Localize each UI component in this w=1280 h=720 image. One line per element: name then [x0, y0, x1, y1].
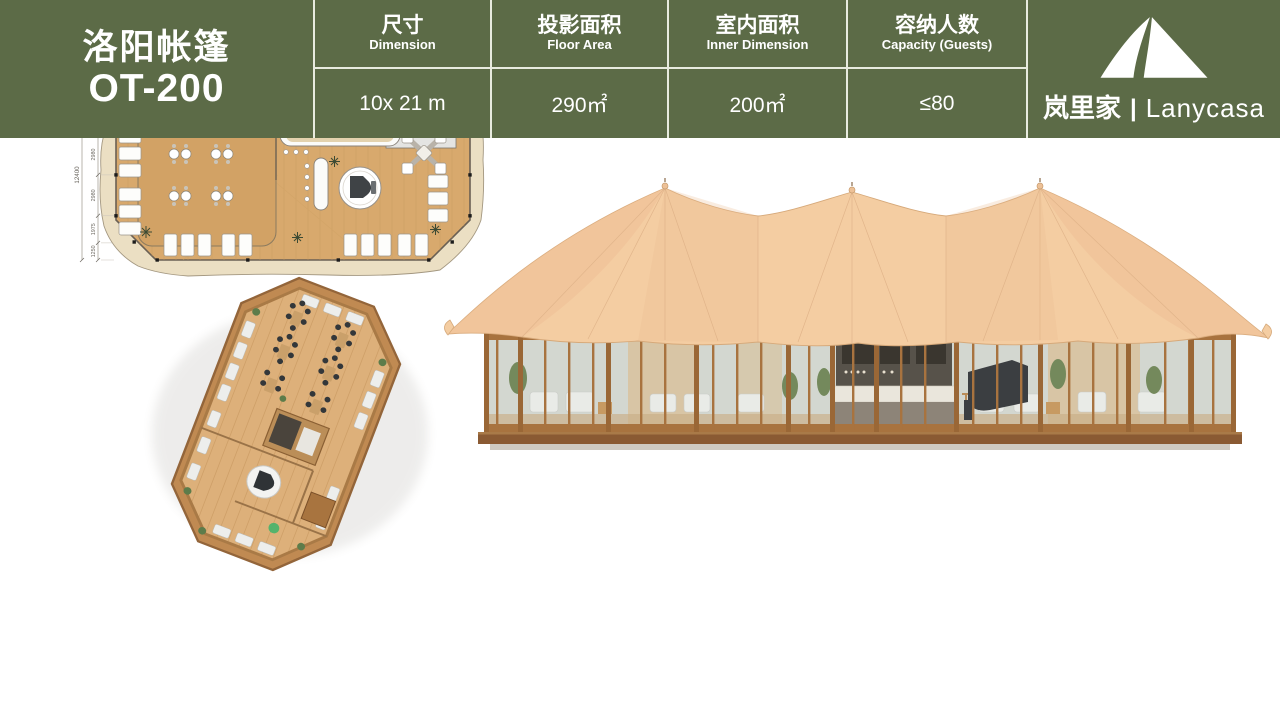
spec-header: 室内面积 Inner Dimension	[669, 0, 846, 69]
product-model: OT-200	[88, 67, 224, 111]
tent-deck	[478, 432, 1242, 450]
brand-name-en: Lanycasa	[1146, 93, 1265, 124]
spec-col-capacity: 容纳人数 Capacity (Guests) ≤80	[848, 0, 1028, 138]
spec-label-cn: 投影面积	[538, 14, 622, 38]
spec-col-inner-dimension: 室内面积 Inner Dimension 200㎡	[669, 0, 848, 138]
spec-label-en: Inner Dimension	[707, 38, 809, 53]
svg-text:2980: 2980	[91, 149, 97, 161]
spec-value: 290㎡	[492, 69, 667, 138]
spec-col-dimension: 尺寸 Dimension 10x 21 m	[315, 0, 492, 138]
spec-label-cn: 室内面积	[716, 14, 800, 38]
spec-header: 投影面积 Floor Area	[492, 0, 667, 69]
brand-name: 岚里家 | Lanycasa	[1043, 88, 1265, 125]
product-title: 洛阳帐篷	[82, 28, 230, 67]
svg-text:2980: 2980	[91, 189, 97, 201]
spec-bar: 洛阳帐篷 OT-200 尺寸 Dimension 10x 21 m 投影面积 F…	[0, 0, 1280, 138]
svg-text:12400: 12400	[74, 166, 81, 184]
tent-wall	[484, 332, 1236, 434]
spec-value: 10x 21 m	[315, 69, 490, 138]
brand-separator: |	[1130, 95, 1137, 123]
spec-col-floor-area: 投影面积 Floor Area 290㎡	[492, 0, 669, 138]
spec-value: 200㎡	[669, 69, 846, 138]
spec-label-en: Floor Area	[547, 38, 612, 53]
svg-text:1975: 1975	[91, 223, 97, 235]
spec-label-cn: 尺寸	[382, 14, 424, 38]
tent-render	[438, 168, 1280, 460]
brand-tent-icon	[1092, 14, 1216, 86]
floorplan-isometric	[118, 266, 454, 584]
spec-header: 容纳人数 Capacity (Guests)	[848, 0, 1026, 69]
slide-canvas: 23400 12400 1250 1475 5985 5985 5985 147…	[0, 0, 1280, 720]
product-name-block: 洛阳帐篷 OT-200	[0, 0, 315, 138]
spec-label-en: Dimension	[369, 38, 435, 53]
svg-text:1250: 1250	[91, 245, 97, 257]
piano-area	[339, 167, 381, 209]
brand-name-cn: 岚里家	[1043, 88, 1121, 125]
tent-canopy	[444, 178, 1271, 346]
spec-label-cn: 容纳人数	[895, 14, 979, 38]
brand-block: 岚里家 | Lanycasa	[1028, 0, 1280, 138]
spec-value: ≤80	[848, 69, 1026, 138]
canopy-finials	[662, 178, 1043, 193]
spec-header: 尺寸 Dimension	[315, 0, 490, 69]
spec-label-en: Capacity (Guests)	[882, 38, 993, 53]
